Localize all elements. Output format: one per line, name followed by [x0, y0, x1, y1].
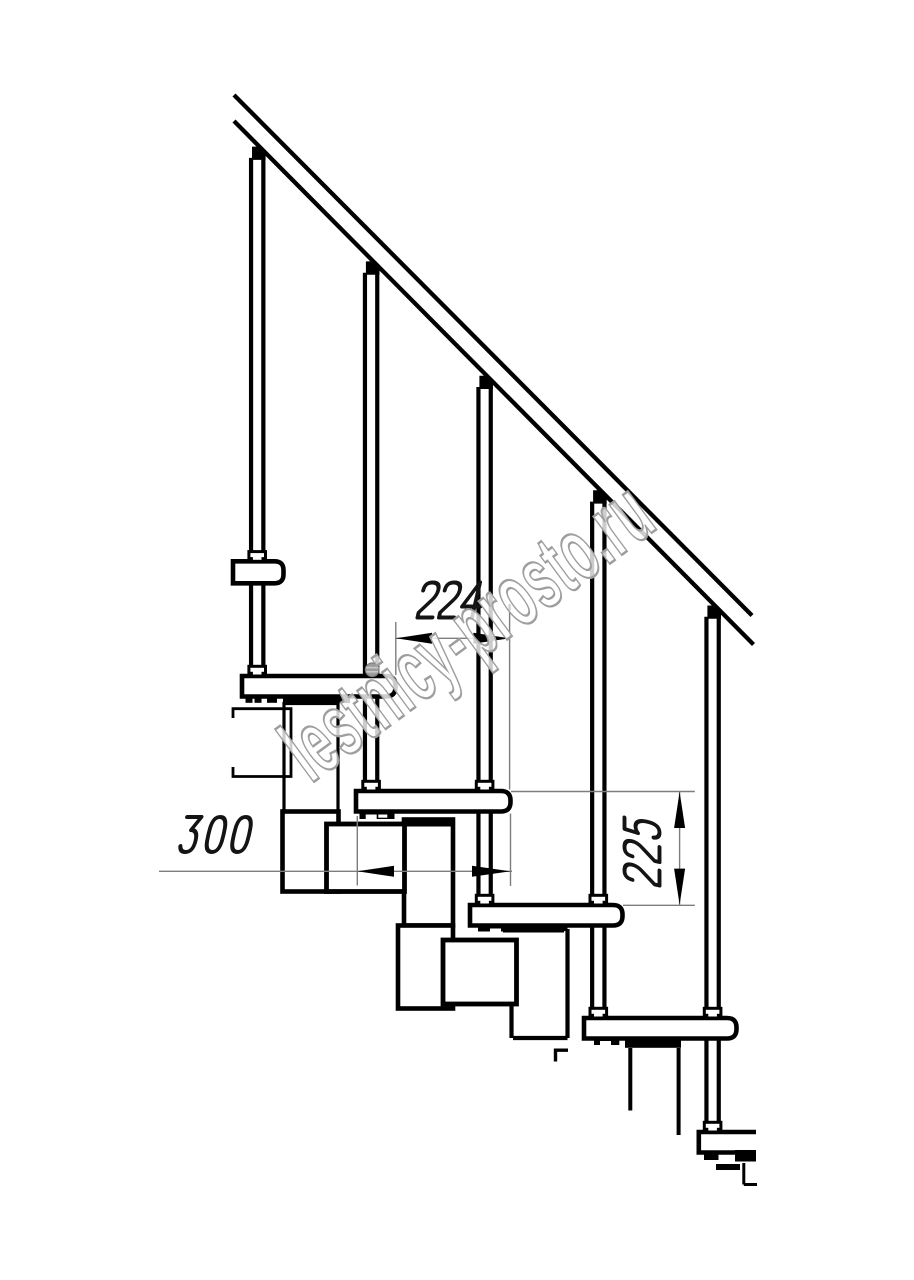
svg-text:lestnicy-prosto.ru: lestnicy-prosto.ru [264, 463, 672, 801]
